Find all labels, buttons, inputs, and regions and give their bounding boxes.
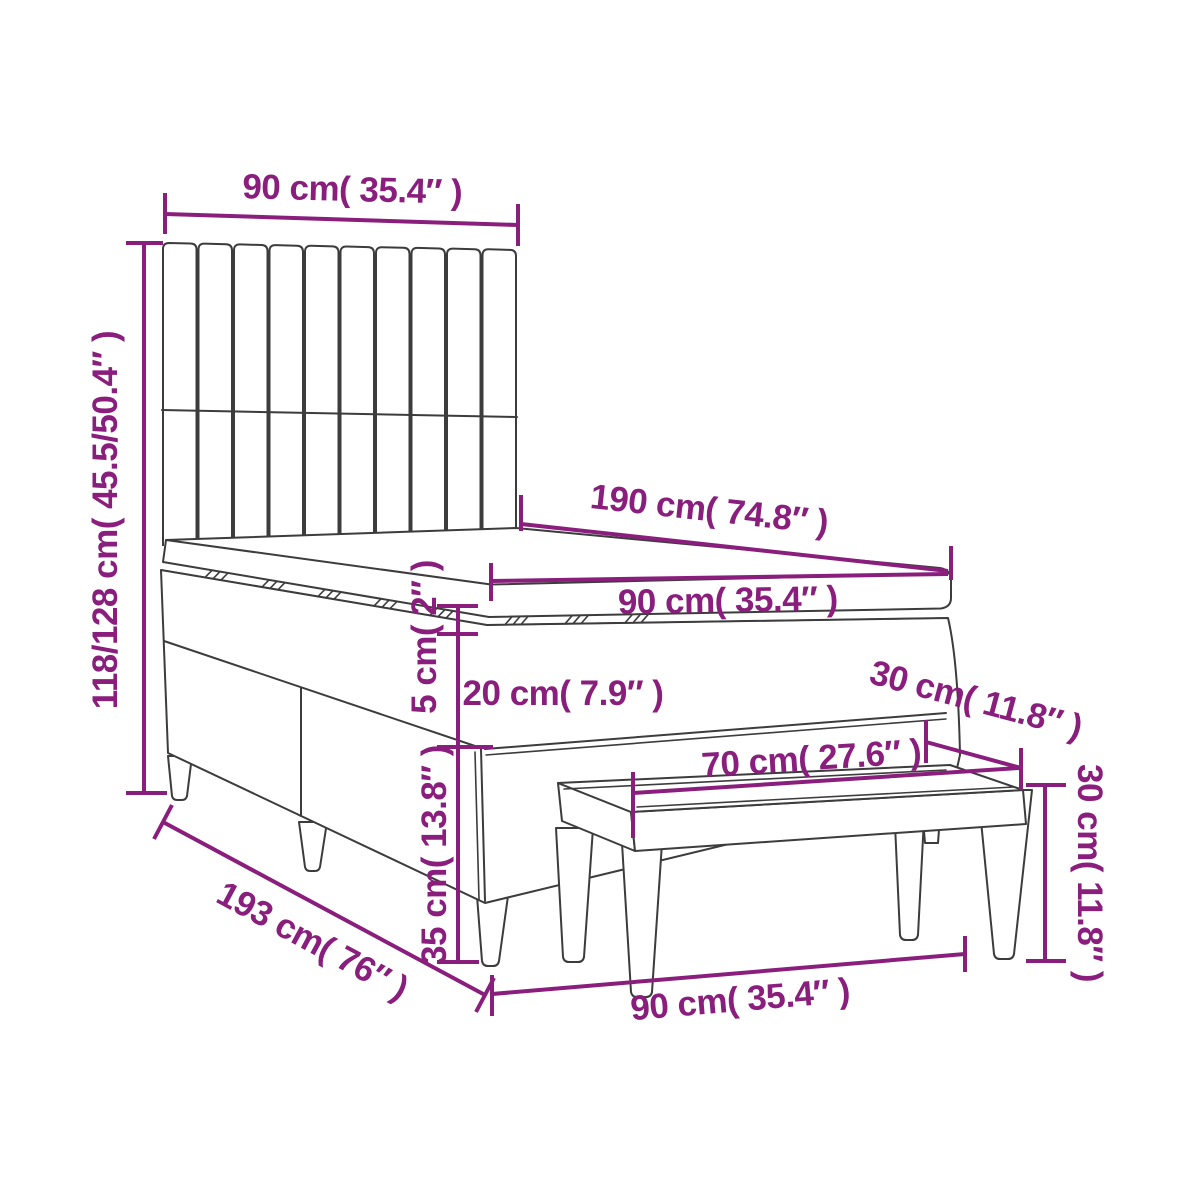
bench [556, 765, 1032, 997]
headboard [162, 243, 517, 546]
bench-leg-front-left [622, 843, 662, 997]
dim-label-bed-height: 118/128 cm( 45.5/50.4″ ) [86, 331, 125, 709]
dim-label-clearance-height: 35 cm( 13.8″ ) [415, 745, 454, 965]
diagram-canvas: 90 cm( 35.4″ ) 118/128 cm( 45.5/50.4″ ) … [0, 0, 1200, 1200]
bench-leg-back-left [556, 828, 593, 962]
bed-leg-middle-left [299, 822, 327, 871]
dim-label-mattress-length: 190 cm( 74.8″ ) [588, 477, 830, 542]
bed-leg-foot-left [477, 896, 508, 966]
bed-dimension-diagram: 90 cm( 35.4″ ) 118/128 cm( 45.5/50.4″ ) … [0, 0, 1200, 1200]
headboard-slats [163, 243, 516, 546]
dim-label-base-height: 20 cm( 7.9″ ) [463, 674, 664, 713]
dim-label-mattress-width: 90 cm( 35.4″ ) [618, 579, 839, 622]
dim-headboard-width: 90 cm( 35.4″ ) [165, 167, 518, 246]
dim-bed-height: 118/128 cm( 45.5/50.4″ ) [86, 243, 167, 793]
dim-label-topper-height: 5 cm( 2″ ) [405, 560, 444, 714]
dim-bench-height: 30 cm( 11.8″ ) [1026, 764, 1109, 982]
dim-label-headboard-width: 90 cm( 35.4″ ) [242, 167, 463, 212]
dim-label-bench-height: 30 cm( 11.8″ ) [1070, 764, 1109, 982]
